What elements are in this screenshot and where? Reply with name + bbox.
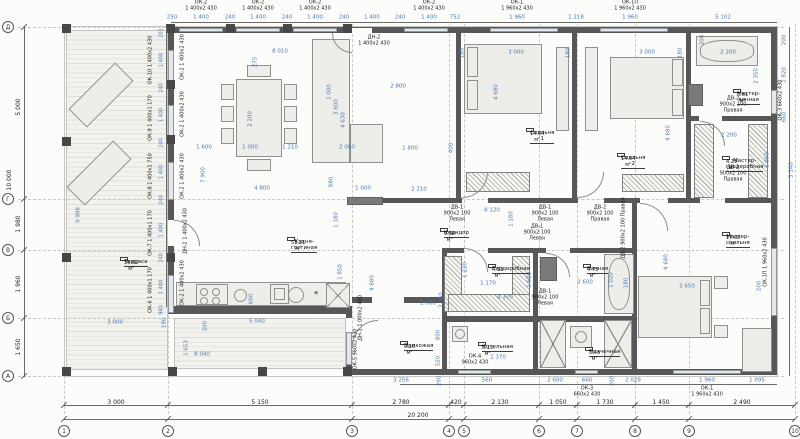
room-area: 14.04 м² <box>621 155 635 168</box>
grid-bubble-col: 8 <box>629 425 641 437</box>
dim-label: ОК-2 1 400х2 430 <box>181 260 186 306</box>
dim-label: 520 <box>436 356 442 367</box>
shaft-x <box>604 320 632 368</box>
shaft-x <box>540 320 566 368</box>
dim-label: 8 040 <box>194 352 210 358</box>
dim-label: 1 400 <box>160 280 165 294</box>
furniture <box>284 106 297 122</box>
dim-label: 4 370 <box>497 295 513 301</box>
dim-label: 240 <box>160 195 165 205</box>
column <box>226 24 235 33</box>
dim-label: 1 170 <box>480 281 496 287</box>
wall <box>668 198 700 203</box>
column <box>62 253 71 262</box>
dim-label: 3 000 <box>639 50 655 56</box>
dim-label: 1 210 <box>282 145 298 151</box>
furniture <box>284 128 297 144</box>
room-area: 36.02 м² <box>124 259 138 272</box>
furniture-dark <box>688 84 703 106</box>
dim-label: Правая <box>590 218 609 223</box>
dim-label: 1 850 <box>338 264 344 280</box>
dim-label: ОК-2 1 400х2 430 <box>181 34 186 80</box>
dim-label: 200 <box>700 35 706 46</box>
dim-label: 1 220 <box>463 262 469 278</box>
column <box>62 137 71 146</box>
dim-label: 2 800 <box>390 84 406 90</box>
dim-label: 600 <box>249 294 255 305</box>
furniture <box>221 128 234 144</box>
grid-line-col <box>577 24 578 414</box>
furniture <box>700 308 710 334</box>
room-card: Гардеробная4.33 м² <box>488 264 496 268</box>
window-segment <box>346 332 352 365</box>
dim-label: 1 400 <box>160 53 165 67</box>
furniture <box>284 84 297 100</box>
dim-label: ОК-6 1 400х1 170 <box>149 267 154 313</box>
dim-label: 20 200 <box>408 413 429 419</box>
dim-label: 3 256 <box>393 378 409 384</box>
dim-label: 1 960х2 430 <box>691 393 723 398</box>
dim-label: 1 400х2 430 <box>358 42 390 47</box>
dim-label: Левая <box>537 302 553 307</box>
window-segment <box>293 28 337 32</box>
room-card: Мастер-ванная5.61 м² <box>733 89 741 93</box>
room-area: 5.13 м² <box>482 344 493 357</box>
wardrobe-hatch <box>448 294 530 312</box>
window-segment <box>575 370 598 374</box>
column <box>62 367 71 376</box>
dim-label: 1 980 <box>16 215 22 232</box>
wall <box>572 33 577 198</box>
furniture <box>247 65 271 77</box>
dim-label: 180 <box>460 48 466 59</box>
grid-bubble-col: 5 <box>458 425 470 437</box>
window-segment <box>168 162 174 200</box>
furniture <box>221 84 234 100</box>
room-card: Кухня-гостиная53.31 м² <box>287 237 295 241</box>
dim-label: ДН-1 1 000х2 400 <box>359 295 364 341</box>
grid-bubble-col: 7 <box>571 425 583 437</box>
dim-label: 1 095 <box>749 378 765 384</box>
room-card: Коридор9.58 м² <box>440 228 448 232</box>
room-card: Терраса36.02 м² <box>120 257 128 261</box>
dim-label: 275 <box>253 57 259 68</box>
dim-label: 2 600 <box>547 378 563 384</box>
dim-label: 240 <box>160 138 165 148</box>
grid-bubble-col: 4 <box>443 425 455 437</box>
grid-bubble-row: А <box>2 370 14 382</box>
dim-label: 3 140 <box>789 162 795 178</box>
dim-label: ОК-2 1 400х2 430 <box>181 153 186 199</box>
column <box>166 80 175 89</box>
dim-label: 2 210 <box>411 187 427 193</box>
room-card: Спальня 114.04 м² <box>526 128 534 132</box>
dim-label: 1 730 <box>596 400 613 406</box>
dim-label: 960х2 430 <box>462 361 489 366</box>
grid-bubble-col: 10 <box>789 425 800 437</box>
dim-label: 8 010 <box>272 49 288 55</box>
room-area: 53.31 м² <box>291 239 305 252</box>
dim-label: 4 680 <box>494 84 500 100</box>
wall <box>533 253 538 369</box>
grid-bubble-row: Д <box>2 21 14 33</box>
room-area: 9.10 м² <box>404 343 415 356</box>
dim-label: 2 160 <box>439 292 445 308</box>
dimension-line <box>64 419 795 420</box>
dim-label: Левая <box>529 237 545 242</box>
dim-label: 1 960 <box>509 15 525 21</box>
dim-label: 8 120 <box>484 208 500 214</box>
column <box>168 367 177 376</box>
furniture <box>672 89 683 116</box>
dim-label: 3 000 <box>107 320 123 326</box>
grid-bubble-row: В <box>2 244 14 256</box>
window-segment <box>179 28 223 32</box>
wall <box>488 198 578 203</box>
room-card: Котельная5.13 м² <box>478 342 486 346</box>
grid-bubble-col: 9 <box>683 425 695 437</box>
dim-label: 180 <box>566 48 572 59</box>
room-card: Прачечная3.43 м² <box>585 347 593 351</box>
dim-label: 4 680 <box>370 275 376 291</box>
furniture <box>714 276 728 289</box>
dim-label: 1 050 <box>549 400 566 406</box>
wall <box>691 116 699 121</box>
column <box>283 24 292 33</box>
dim-label: 2 000 <box>339 145 355 151</box>
furniture <box>585 47 598 131</box>
dim-label: 1 400х2 430 <box>185 7 217 12</box>
dim-label: ОК-7 1 400х1 170 <box>149 210 154 256</box>
wardrobe-hatch <box>622 174 684 192</box>
dim-label: 3 650 <box>679 284 695 290</box>
dim-label: 7 900 <box>201 167 207 183</box>
dim-label: 190 <box>162 318 168 329</box>
dim-label: 2 600 <box>577 280 593 286</box>
dim-label: 1 400х2 430 <box>242 7 274 12</box>
dim-label: ОК-1П 1 960х2 430 <box>764 237 769 286</box>
dim-label: 4 800 <box>254 186 270 192</box>
window-segment <box>771 90 777 114</box>
dim-tick <box>792 416 798 422</box>
grid-bubble-row: Б <box>2 312 14 324</box>
grid-line-col <box>795 24 796 414</box>
room-card: Мастер-гардеробная4.29 м² <box>722 156 730 160</box>
grid-bubble-col: 3 <box>346 425 358 437</box>
dim-label: 560 <box>482 378 493 384</box>
dim-label: 1 400х2 430 <box>413 7 445 12</box>
dim-label: 1 960 <box>699 378 715 384</box>
dim-label: 2 200 <box>721 133 737 139</box>
window-segment <box>673 370 741 374</box>
column <box>343 24 352 33</box>
dim-label: 1 960х2 430 <box>501 7 533 12</box>
dim-label: 201 <box>160 28 165 38</box>
room-card: Ванная4.73 м² <box>583 264 591 268</box>
room-area: 4.33 м² <box>492 266 503 279</box>
dim-label: 1 400 <box>160 108 165 122</box>
dim-label: 2 490 <box>733 400 750 406</box>
window-segment <box>600 28 668 32</box>
dim-label: ОК-2 1 400х2 430 <box>181 91 186 137</box>
dim-label: ОК-8 1 400х1 750 <box>149 153 154 199</box>
furniture <box>672 59 683 86</box>
dim-label: 752 <box>450 15 461 21</box>
dim-label: 200 <box>782 35 788 46</box>
grid-line-row <box>18 250 784 251</box>
window-segment <box>490 28 558 32</box>
dim-label: 1 800 <box>402 146 418 152</box>
dim-label: 880 <box>329 177 335 188</box>
dim-label: 5 040 <box>249 319 265 325</box>
grid-bubble-col: 6 <box>533 425 545 437</box>
fixture-circle <box>200 297 208 305</box>
floor-plan: 12345678910ДГВБАОК-21 400х2 430ОК-21 400… <box>0 0 800 439</box>
furniture <box>467 47 478 77</box>
room-card: Мастер-спальня17.08 м² <box>722 232 730 236</box>
window-segment <box>168 275 174 313</box>
room-area: 9.58 м² <box>444 230 455 243</box>
wall <box>725 198 771 203</box>
dim-label: ОК-3 660х2 430 <box>779 80 784 121</box>
dim-label: 1 400 <box>421 15 437 21</box>
dim-label: 1 450 <box>652 400 669 406</box>
dim-label: 1 400 <box>160 223 165 237</box>
room-card: Прихожая9.10 м² <box>400 341 408 345</box>
dim-label: 1 000 <box>327 84 333 100</box>
window-segment <box>771 248 777 316</box>
dim-label: ОК-9 1 400х1 170 <box>149 95 154 141</box>
furniture <box>221 106 234 122</box>
dim-label: Левая <box>537 218 553 223</box>
dim-label: 4 680 <box>664 254 670 270</box>
dim-label: 2 780 <box>392 400 409 406</box>
dim-label: 3 600 <box>334 99 340 115</box>
furniture <box>247 159 271 171</box>
wall <box>722 116 771 121</box>
dimension-line <box>24 27 25 377</box>
dim-label: 240 <box>395 15 406 21</box>
wall <box>771 33 777 375</box>
dim-label: ДВ-2 900х2 100 Правая <box>622 197 627 258</box>
dim-label: 1 400 <box>160 165 165 179</box>
dim-label: 1 180 <box>334 212 340 228</box>
dim-label: 660 <box>582 378 593 384</box>
room-area: 14.04 м² <box>530 130 544 143</box>
fixture-circle <box>288 287 304 303</box>
dim-label: 800 <box>436 330 442 341</box>
dim-label: 2 130 <box>491 400 508 406</box>
fixture-circle <box>234 289 247 302</box>
dim-label: 5 000 <box>16 98 22 115</box>
dim-label: 4 680 <box>666 125 672 141</box>
dim-label: 400 <box>449 143 455 154</box>
dimension-line <box>789 27 790 376</box>
dim-label: Правая <box>723 109 742 114</box>
column <box>166 24 175 33</box>
room-area: 5.61 м² <box>737 91 748 104</box>
dim-label: ДН-2 1 400х2 430 <box>184 208 189 254</box>
dim-label: 2 029 <box>625 378 641 384</box>
dim-label: 9 998 <box>76 207 82 223</box>
dim-label: 3 000 <box>107 400 124 406</box>
dim-label: 1 000 <box>355 186 371 192</box>
dim-label: 200 <box>203 321 209 332</box>
dim-label: 1 400 <box>250 15 266 21</box>
dim-label: 1 020 <box>609 272 615 288</box>
room-area: 4.29 м² <box>726 158 737 171</box>
dim-label: 240 <box>339 15 350 21</box>
furniture <box>714 325 728 338</box>
grid-bubble-row: Г <box>2 193 14 205</box>
dim-label: 1 650 <box>16 338 22 355</box>
dim-label: 1 653 <box>184 340 190 356</box>
dim-label: 1 400 <box>307 15 323 21</box>
dim-label: 240 <box>225 15 236 21</box>
dim-label: Правая <box>723 178 742 183</box>
shaft-x <box>326 283 350 308</box>
dim-label: ✳ <box>313 291 318 297</box>
dim-label: 3 000 <box>508 50 524 56</box>
furniture-dark <box>347 197 383 205</box>
column <box>166 253 175 262</box>
dim-label: 1 950 <box>765 152 771 168</box>
dim-label: 180 <box>624 278 630 289</box>
dim-label: 1 960 <box>622 15 638 21</box>
dim-label: ОК-10 1 400х2 430 <box>149 36 154 85</box>
window-segment <box>458 370 491 374</box>
furniture <box>700 280 710 306</box>
dim-label: 980 <box>160 305 165 315</box>
grid-bubble-col: 1 <box>58 425 70 437</box>
furniture <box>467 80 478 110</box>
fixture-circle <box>212 297 220 305</box>
dim-label: 420 <box>450 400 461 406</box>
dim-label: 2 350 <box>754 68 760 84</box>
dimension-line <box>166 27 167 307</box>
column <box>166 135 175 144</box>
fixture-circle <box>455 329 465 339</box>
dim-label: 1 620 <box>527 272 533 288</box>
room-area: 17.08 м² <box>726 234 740 247</box>
furniture <box>742 328 772 372</box>
dim-label: 1 218 <box>568 15 584 21</box>
window-segment <box>404 28 448 32</box>
dim-label: 240 <box>282 15 293 21</box>
column <box>62 24 71 33</box>
window-segment <box>236 28 280 32</box>
fixture-circle <box>200 288 208 296</box>
dim-label: 250 <box>167 15 178 21</box>
dimension-line <box>171 22 777 23</box>
wall <box>168 306 352 314</box>
dim-label: 2 200 <box>720 50 736 56</box>
dim-label: 2 200 <box>248 111 254 127</box>
dim-label: 1 400 <box>193 15 209 21</box>
dim-label: 1 600 <box>196 145 212 151</box>
dim-label: 200 <box>610 376 616 387</box>
column <box>343 367 352 376</box>
dim-label: 5 102 <box>715 15 731 21</box>
fixture-circle <box>575 331 587 343</box>
dim-label: Левая <box>449 218 465 223</box>
dim-label: 1 180 <box>509 211 515 227</box>
dim-label: 1 400 <box>364 15 380 21</box>
dim-label: 660х2 430 <box>574 393 601 398</box>
room-area: 4.73 м² <box>587 266 598 279</box>
dimension-line <box>64 405 795 406</box>
grid-bubble-col: 2 <box>162 425 174 437</box>
dim-label: 1 960х2 430 <box>614 7 646 12</box>
dim-label: ОК-5 960х2 430 <box>354 329 359 370</box>
room-card: Спальня 214.04 м² <box>617 153 625 157</box>
dim-label: 1 400х2 430 <box>299 7 331 12</box>
dim-label: 240 <box>160 83 165 93</box>
furniture <box>274 288 285 300</box>
dim-label: 10 000 <box>7 170 13 191</box>
dim-label: 4 630 <box>341 112 347 128</box>
column <box>258 367 267 376</box>
dim-label: 200 <box>437 376 443 387</box>
door-opening <box>350 28 372 33</box>
room-area: 3.43 м² <box>589 349 600 362</box>
grid-line-col <box>64 24 65 414</box>
fixture-circle <box>212 288 220 296</box>
dim-label: 240 <box>160 253 165 263</box>
dim-label: 5 150 <box>251 400 268 406</box>
dim-label: 2 600 <box>420 301 436 307</box>
dim-label: 1 000 <box>242 145 258 151</box>
dim-label: 180 <box>678 48 684 59</box>
furniture <box>556 47 569 131</box>
dim-label: 1 960 <box>16 275 22 292</box>
